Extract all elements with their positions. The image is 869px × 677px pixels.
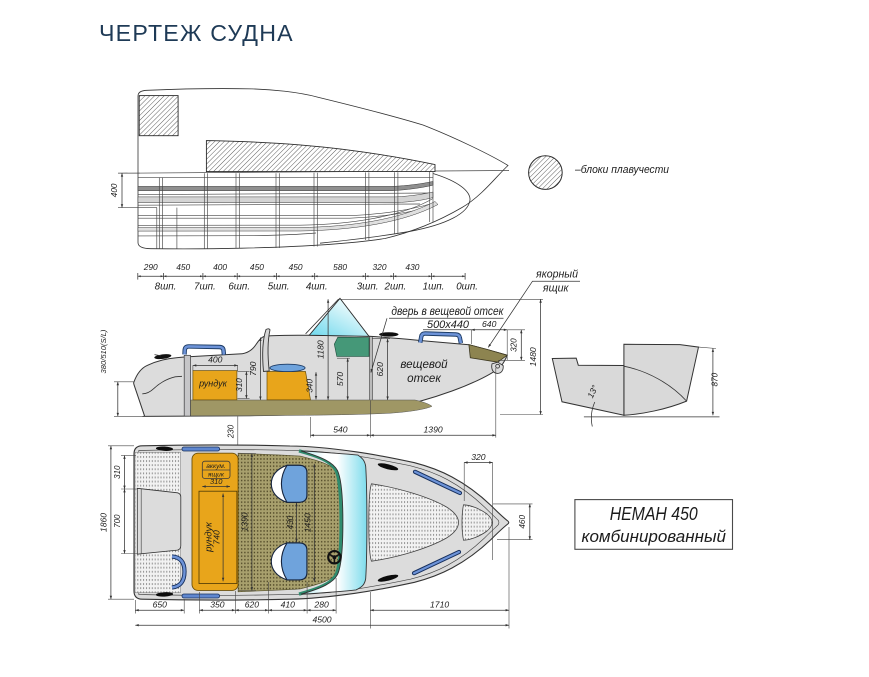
svg-text:1шп.: 1шп.: [423, 282, 445, 293]
svg-text:1390: 1390: [424, 424, 443, 434]
svg-text:отсек: отсек: [407, 372, 441, 385]
svg-text:280: 280: [313, 599, 329, 609]
svg-text:310: 310: [235, 378, 244, 392]
svg-text:290: 290: [143, 262, 158, 272]
svg-text:450: 450: [250, 262, 264, 272]
svg-text:460: 460: [518, 515, 527, 529]
svg-text:8шп.: 8шп.: [155, 282, 177, 293]
svg-text:дверь в вещевой отсек: дверь в вещевой отсек: [391, 305, 503, 318]
svg-text:620: 620: [375, 362, 385, 377]
svg-text:1450: 1450: [302, 513, 312, 532]
svg-text:0шп.: 0шп.: [456, 282, 478, 293]
svg-text:1860: 1860: [98, 513, 108, 532]
svg-text:310: 310: [210, 477, 223, 486]
svg-text:700: 700: [113, 514, 122, 528]
svg-text:570: 570: [335, 372, 345, 387]
svg-text:870: 870: [711, 372, 720, 386]
svg-text:1390: 1390: [240, 512, 250, 531]
svg-text:рундук: рундук: [198, 379, 228, 389]
svg-text:320: 320: [373, 262, 387, 272]
svg-text:320: 320: [471, 452, 486, 462]
svg-text:430: 430: [405, 262, 419, 272]
svg-text:ящик: ящик: [542, 283, 570, 295]
svg-text:400: 400: [213, 262, 227, 272]
svg-text:580: 580: [333, 262, 347, 272]
svg-text:6шп.: 6шп.: [228, 282, 250, 293]
svg-text:рундук: рундук: [204, 522, 215, 553]
svg-text:7шп.: 7шп.: [194, 282, 216, 293]
svg-text:540: 540: [333, 424, 348, 434]
svg-text:3шп.: 3шп.: [357, 282, 379, 293]
svg-text:400: 400: [110, 183, 119, 197]
svg-text:450: 450: [176, 262, 190, 272]
svg-text:1710: 1710: [430, 599, 449, 609]
svg-text:5шп.: 5шп.: [268, 282, 290, 293]
svg-text:ЧЕРТЕЖ СУДНА: ЧЕРТЕЖ СУДНА: [99, 20, 294, 46]
svg-text:вещевой: вещевой: [400, 358, 448, 371]
svg-text:430: 430: [286, 515, 295, 529]
svg-text:640: 640: [482, 319, 497, 329]
svg-text:310: 310: [113, 465, 122, 479]
svg-text:620: 620: [245, 599, 260, 609]
svg-text:якорный: якорный: [535, 269, 578, 281]
svg-text:790: 790: [248, 361, 258, 376]
svg-text:450: 450: [289, 262, 303, 272]
svg-text:–блоки плавучести: –блоки плавучести: [574, 164, 669, 176]
svg-text:4шп.: 4шп.: [306, 282, 328, 293]
svg-text:230: 230: [227, 424, 236, 439]
svg-text:500х440: 500х440: [427, 319, 470, 331]
svg-text:400: 400: [208, 355, 223, 365]
svg-text:НЕМАН 450: НЕМАН 450: [610, 503, 699, 524]
svg-text:340: 340: [306, 379, 315, 393]
svg-text:комбинированный: комбинированный: [581, 527, 726, 546]
svg-text:1180: 1180: [316, 340, 326, 359]
svg-text:380/510(S/L): 380/510(S/L): [99, 329, 108, 373]
svg-text:650: 650: [153, 599, 168, 609]
svg-text:2шп.: 2шп.: [384, 282, 407, 293]
svg-text:410: 410: [281, 599, 296, 609]
svg-text:350: 350: [210, 599, 225, 609]
svg-text:320: 320: [510, 338, 519, 352]
svg-text:аккум.: аккум.: [206, 463, 226, 470]
svg-text:1480: 1480: [528, 347, 538, 366]
svg-text:4500: 4500: [312, 614, 331, 624]
